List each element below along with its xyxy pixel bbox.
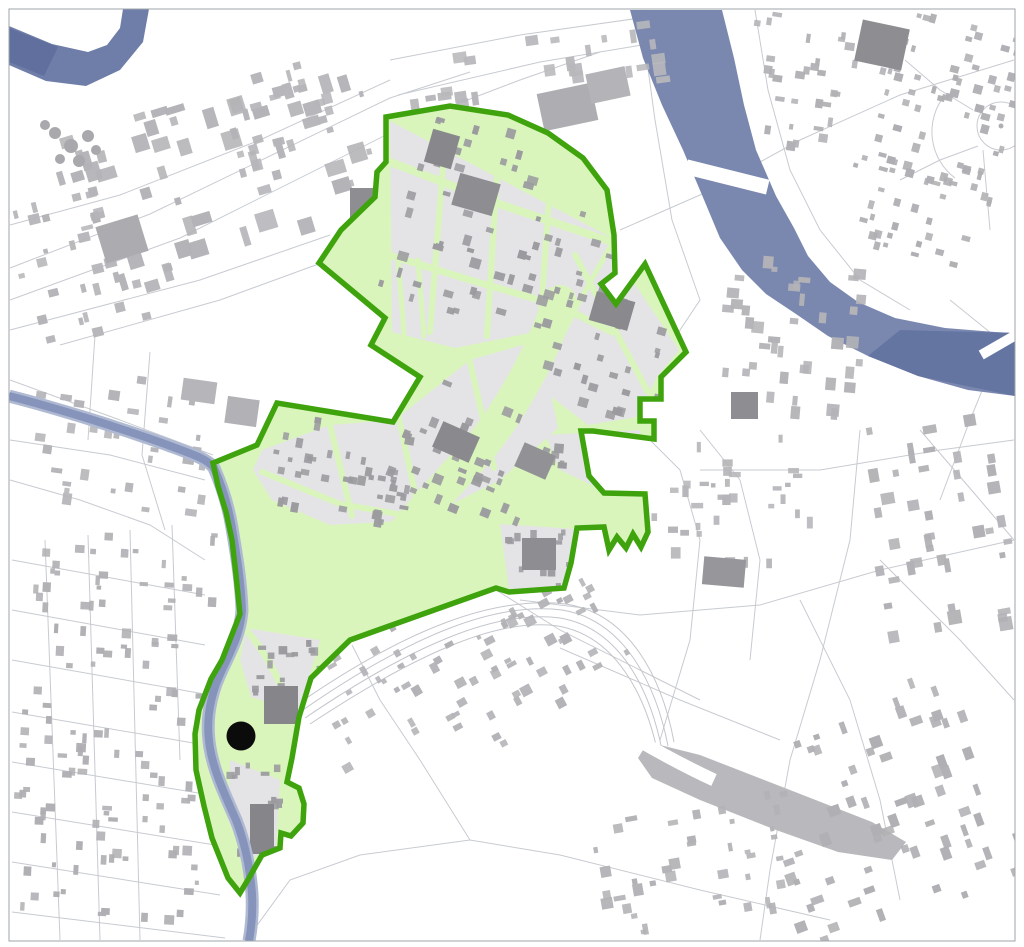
city-map-container bbox=[0, 0, 1024, 947]
city-map bbox=[0, 0, 1024, 947]
map-figure bbox=[0, 0, 1024, 947]
location-marker-dot bbox=[227, 722, 256, 751]
